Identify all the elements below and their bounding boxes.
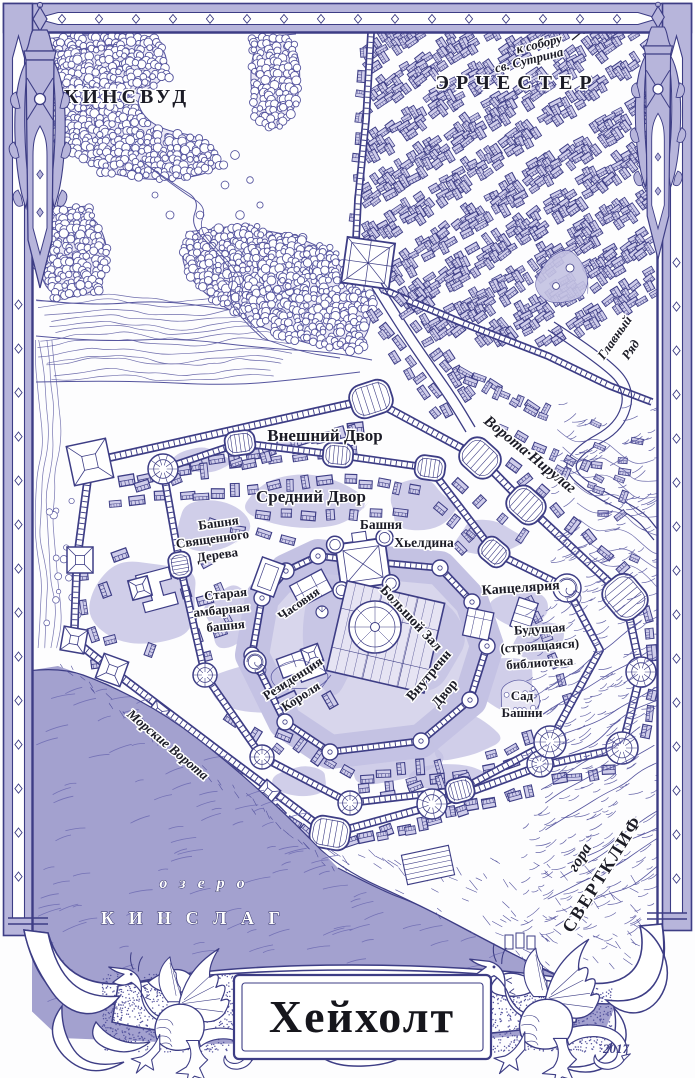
svg-text:КИНСВУД: КИНСВУД [64, 86, 190, 108]
svg-text:Башни: Башни [501, 705, 543, 720]
svg-text:Башня: Башня [360, 517, 402, 532]
svg-text:Сад: Сад [511, 688, 534, 703]
svg-text:К И Н С Л А Г: К И Н С Л А Г [101, 908, 285, 928]
svg-text:2017: 2017 [602, 1041, 630, 1056]
svg-text:Хьелдина: Хьелдина [394, 535, 454, 550]
svg-text:о з е р о: о з е р о [159, 875, 248, 892]
svg-text:Средний Двор: Средний Двор [256, 487, 366, 506]
svg-text:Внешний Двор: Внешний Двор [267, 426, 382, 445]
svg-text:ЭРЧЕСТЕР: ЭРЧЕСТЕР [435, 72, 598, 94]
svg-text:Хейхолт: Хейхолт [269, 991, 455, 1042]
